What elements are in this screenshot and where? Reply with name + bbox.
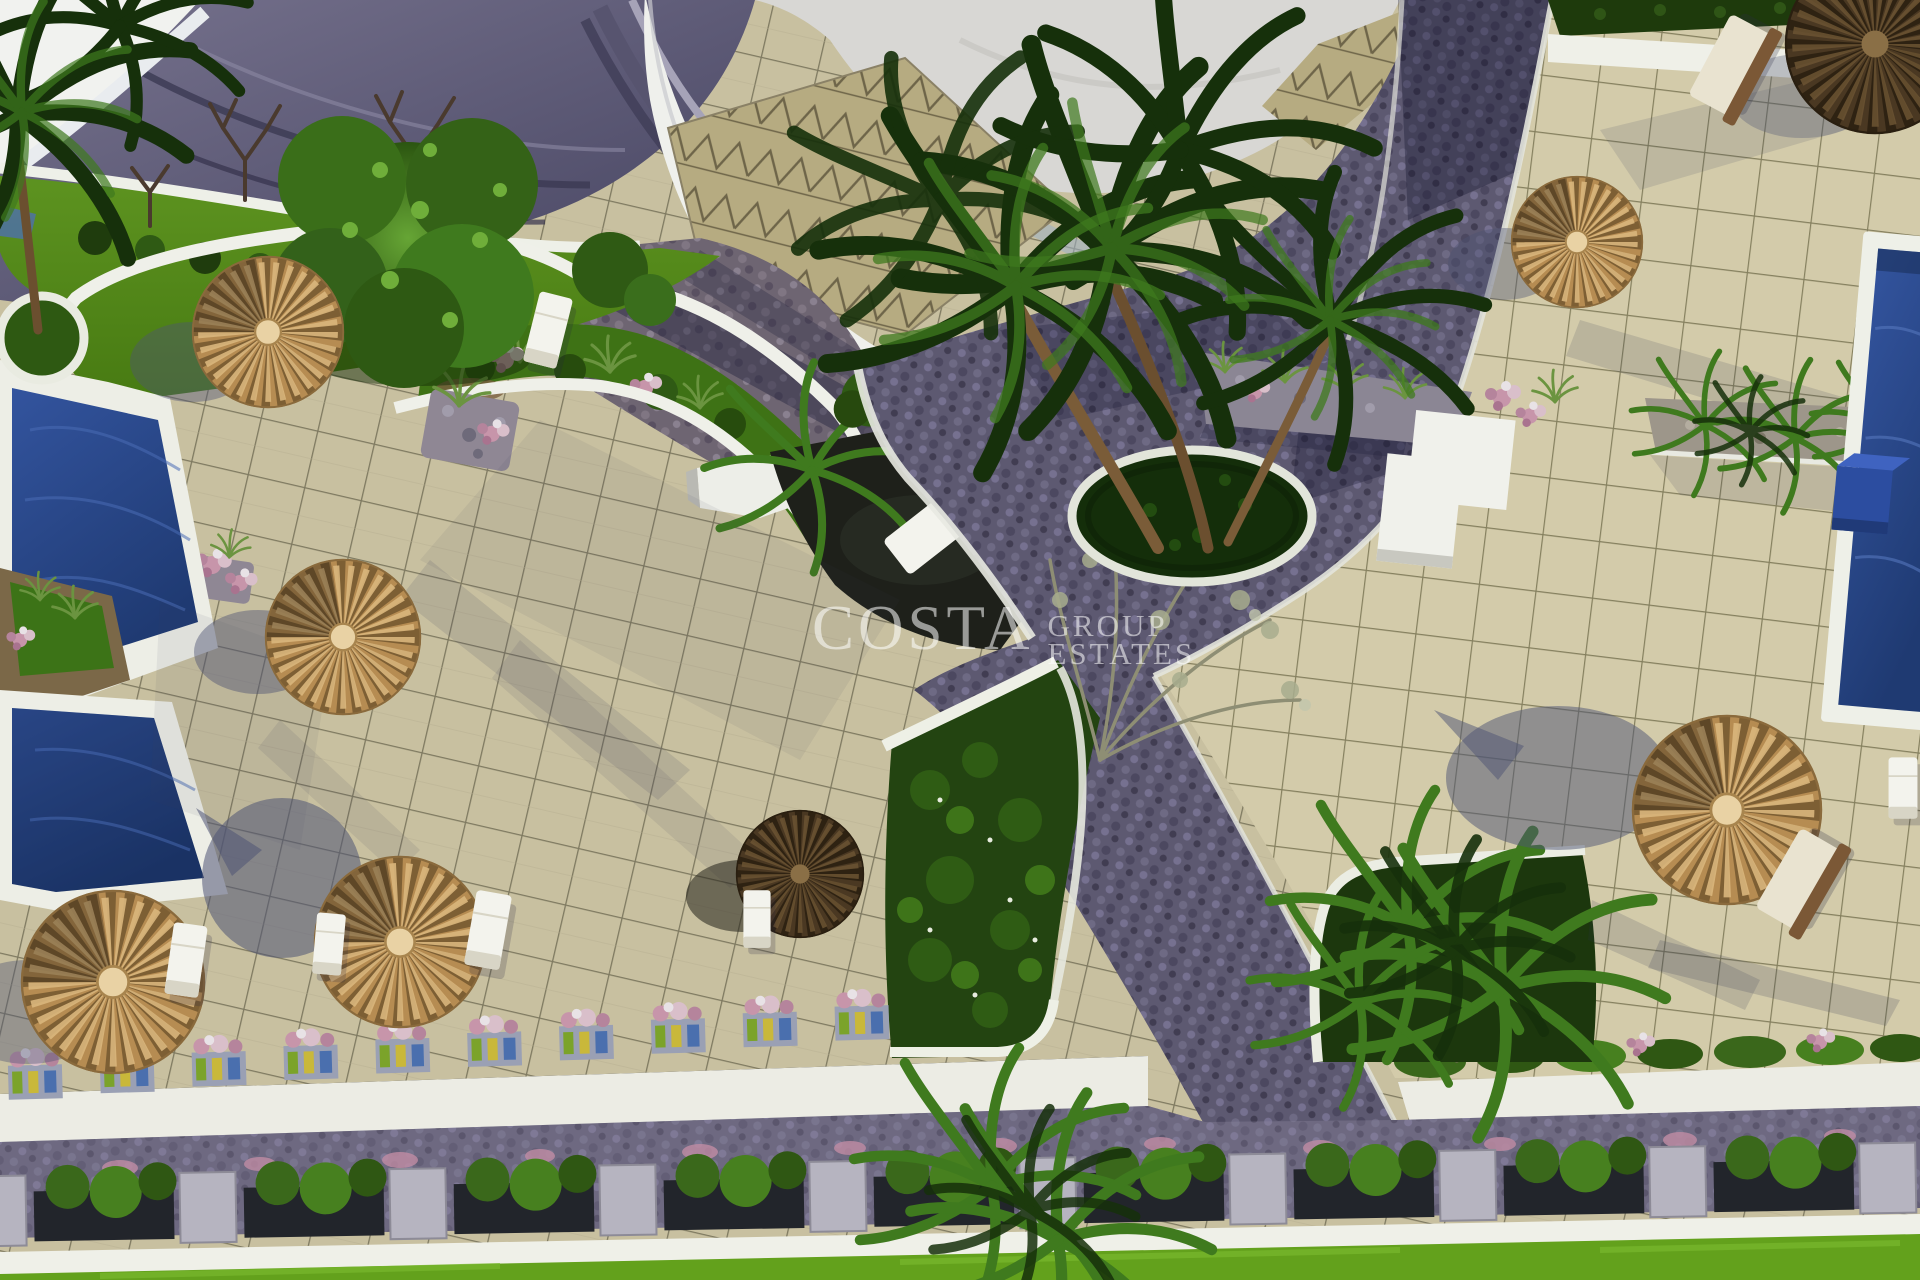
sun-lounger	[743, 890, 775, 954]
scene-canvas	[0, 0, 1920, 1280]
sun-lounger	[1889, 757, 1920, 825]
sun-lounger	[311, 912, 351, 983]
thatched-parasol	[192, 256, 344, 408]
resort-aerial-render: COSTA GROUP ESTATES	[0, 0, 1920, 1280]
thatched-parasol	[1511, 176, 1643, 308]
thatched-parasol	[265, 559, 421, 715]
